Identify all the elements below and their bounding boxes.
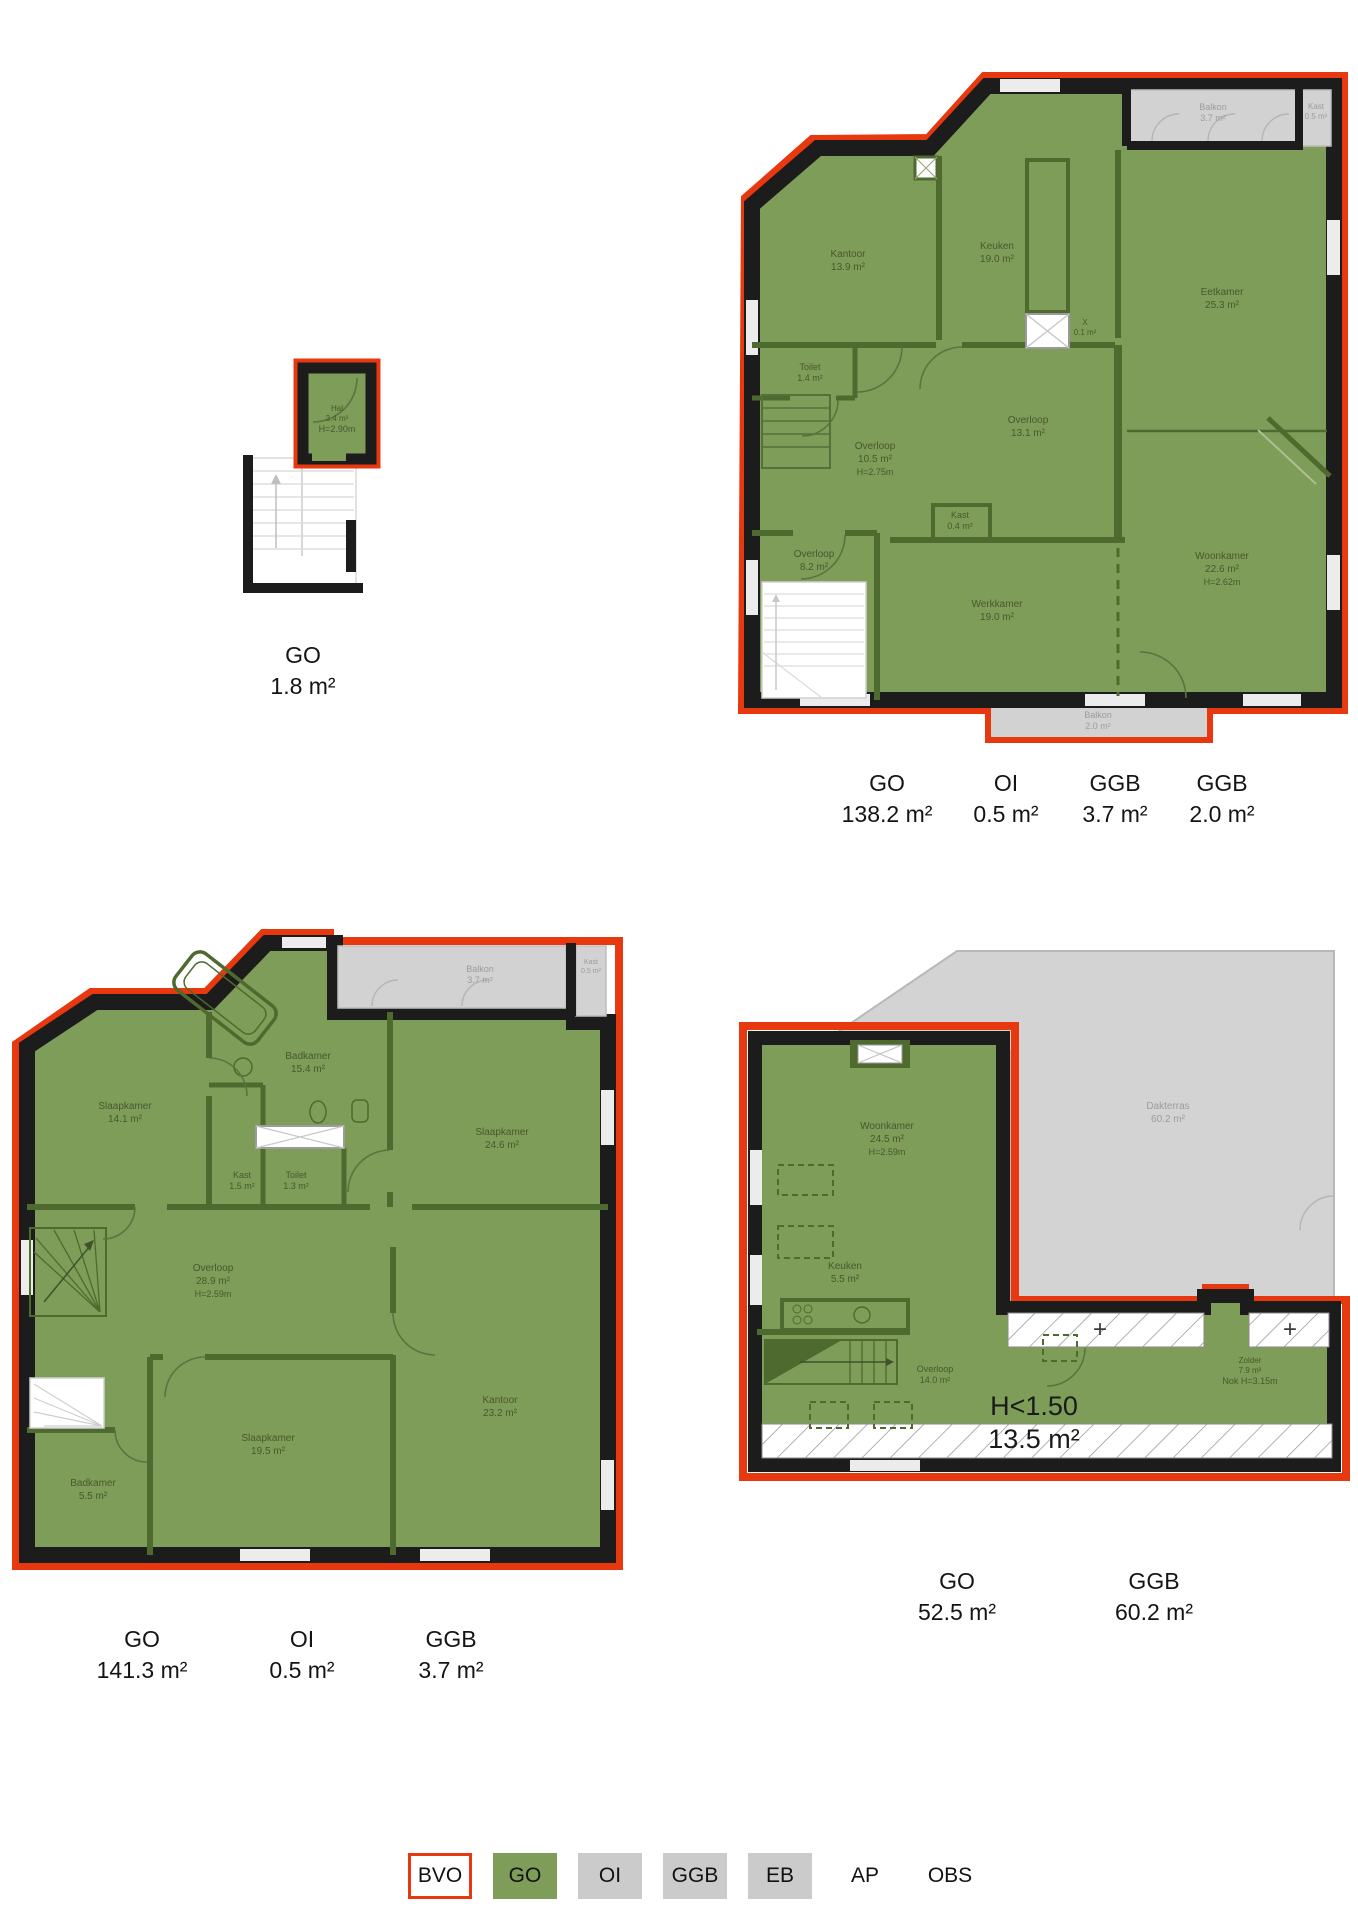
room-label-slaapkamer-3: Slaapkamer19.5 m² [241,1432,294,1458]
legend-item-oi: OI [578,1853,642,1899]
room-label-overloop-3: Overloop8.2 m² [794,548,835,574]
room-label-overloop-1: Overloop10.5 m²H=2.75m [855,440,896,479]
room-label-werkkamer: Werkkamer19.0 m² [972,598,1023,624]
room-label-badkamer-1: Badkamer15.4 m² [285,1050,331,1076]
low-height-plus-marker: + [1283,1316,1297,1344]
room-label-toilet: Toilet1.4 m² [797,362,823,384]
room-label-woonkamer-2: Woonkamer24.5 m²H=2.59m [860,1120,914,1159]
room-label-hal: Hal3.4 m²H=2.90m [319,404,356,434]
metric-ggb-floor4: GGB60.2 m² [1115,1566,1193,1628]
room-label-balkon-onder: Balkon2.0 m² [1084,710,1112,732]
plan3-shape [16,933,619,1566]
legend-item-obs: OBS [918,1853,982,1899]
low-height-note: H<1.5013.5 m² [988,1390,1080,1456]
metric-go-floor1: GO1.8 m² [270,640,335,702]
metric-go-floor2: GO138.2 m² [842,768,933,830]
legend-item-ap: AP [833,1853,897,1899]
room-label-woonkamer: Woonkamer22.6 m²H=2.62m [1195,550,1249,589]
legend-item-go: GO [493,1853,557,1899]
room-label-dakterras: Dakterras60.2 m² [1146,1100,1189,1126]
room-label-overloop-4: Overloop28.9 m²H=2.59m [193,1262,234,1301]
room-label-eetkamer: Eetkamer25.3 m² [1201,286,1244,312]
room-label-kast-buiten-2: Kast0.5 m² [581,958,601,976]
legend-item-ggb: GGB [663,1853,727,1899]
metric-oi-floor2: OI0.5 m² [973,768,1038,830]
room-label-keuken: Keuken19.0 m² [980,240,1014,266]
room-label-kast: Kast0.4 m² [947,510,973,532]
legend-item-eb: EB [748,1853,812,1899]
room-label-kast-buiten: Kast0.5 m² [1305,102,1328,122]
room-label-toilet-2: Toilet1.3 m² [283,1170,309,1192]
plan2-shape [742,76,1344,740]
room-label-zolder: Zolder7.9 m²Nok H=3.15m [1222,1356,1277,1386]
floorplan-drawing [0,0,1358,1920]
metric-go-floor3: GO141.3 m² [97,1624,188,1686]
floorplan-page: Hal3.4 m²H=2.90m GO1.8 m² Kantoor13.9 m²… [0,0,1358,1920]
room-label-badkamer-2: Badkamer5.5 m² [70,1477,116,1503]
low-height-plus-marker: + [1093,1316,1107,1344]
room-label-overloop-5: Overloop14.0 m² [917,1364,954,1386]
metric-ggb-floor3: GGB3.7 m² [418,1624,483,1686]
metric-oi-floor3: OI0.5 m² [269,1624,334,1686]
legend-item-bvo: BVO [408,1853,472,1899]
metric-go-floor4: GO52.5 m² [918,1566,996,1628]
plan1-shape [243,362,377,593]
room-label-shaft: X0.1 m² [1074,318,1097,338]
room-label-kantoor: Kantoor13.9 m² [830,248,865,274]
room-label-slaapkamer-1: Slaapkamer14.1 m² [98,1100,151,1126]
metric-ggb1-floor2: GGB3.7 m² [1082,768,1147,830]
room-label-kantoor-2: Kantoor23.2 m² [482,1394,517,1420]
room-label-balkon-2: Balkon3.7 m² [466,964,494,986]
metric-ggb2-floor2: GGB2.0 m² [1189,768,1254,830]
room-label-slaapkamer-2: Slaapkamer24.6 m² [475,1126,528,1152]
room-label-kast-2: Kast1.5 m² [229,1170,255,1192]
room-label-overloop-2: Overloop13.1 m² [1008,414,1049,440]
room-label-keuken-2: Keuken5.5 m² [828,1260,862,1286]
room-label-balkon-top: Balkon3.7 m² [1199,102,1227,124]
